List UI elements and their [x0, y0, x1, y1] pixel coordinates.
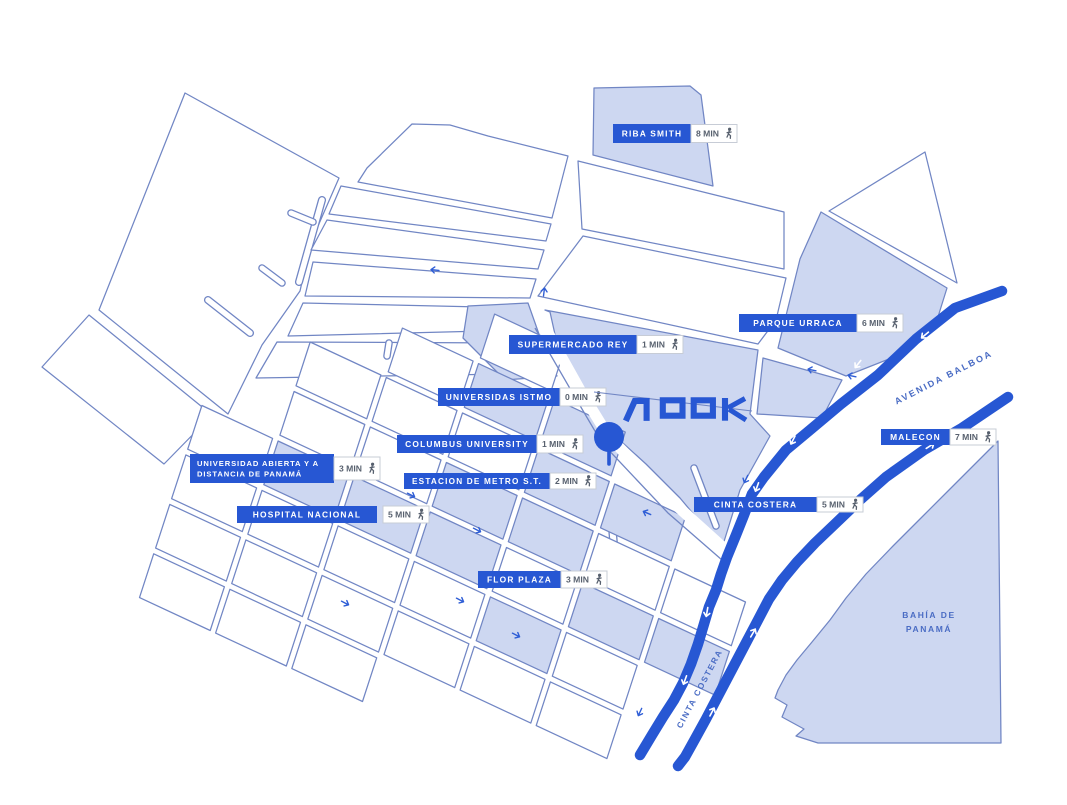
svg-text:PARQUE URRACA: PARQUE URRACA [753, 318, 842, 328]
svg-text:ESTACION DE METRO S.T.: ESTACION DE METRO S.T. [412, 477, 542, 486]
svg-text:3 MIN: 3 MIN [339, 464, 362, 474]
svg-text:1 MIN: 1 MIN [542, 439, 565, 449]
svg-text:DISTANCIA DE PANAMÁ: DISTANCIA DE PANAMÁ [197, 470, 302, 479]
svg-text:PANAMÁ: PANAMÁ [906, 624, 952, 634]
svg-text:8 MIN: 8 MIN [696, 129, 719, 139]
svg-text:6 MIN: 6 MIN [862, 318, 885, 328]
svg-text:0 MIN: 0 MIN [565, 392, 588, 402]
svg-text:1 MIN: 1 MIN [642, 340, 665, 350]
svg-text:5 MIN: 5 MIN [822, 500, 845, 510]
svg-text:3 MIN: 3 MIN [566, 575, 589, 585]
svg-text:5 MIN: 5 MIN [388, 510, 411, 520]
svg-text:UNIVERSIDAD ABIERTA Y A: UNIVERSIDAD ABIERTA Y A [197, 459, 319, 468]
svg-text:7 MIN: 7 MIN [955, 432, 978, 442]
svg-text:COLUMBUS UNIVERSITY: COLUMBUS UNIVERSITY [405, 439, 529, 449]
svg-text:UNIVERSIDAS ISTMO: UNIVERSIDAS ISTMO [446, 392, 553, 402]
svg-text:FLOR PLAZA: FLOR PLAZA [487, 575, 552, 585]
svg-text:HOSPITAL NACIONAL: HOSPITAL NACIONAL [253, 510, 362, 520]
svg-text:2 MIN: 2 MIN [555, 476, 578, 486]
svg-text:RIBA SMITH: RIBA SMITH [622, 129, 683, 139]
svg-text:SUPERMERCADO REY: SUPERMERCADO REY [518, 340, 629, 350]
svg-text:CINTA COSTERA: CINTA COSTERA [714, 500, 798, 510]
svg-text:BAHÍA DE: BAHÍA DE [902, 610, 956, 620]
svg-text:MALECON: MALECON [890, 432, 941, 442]
